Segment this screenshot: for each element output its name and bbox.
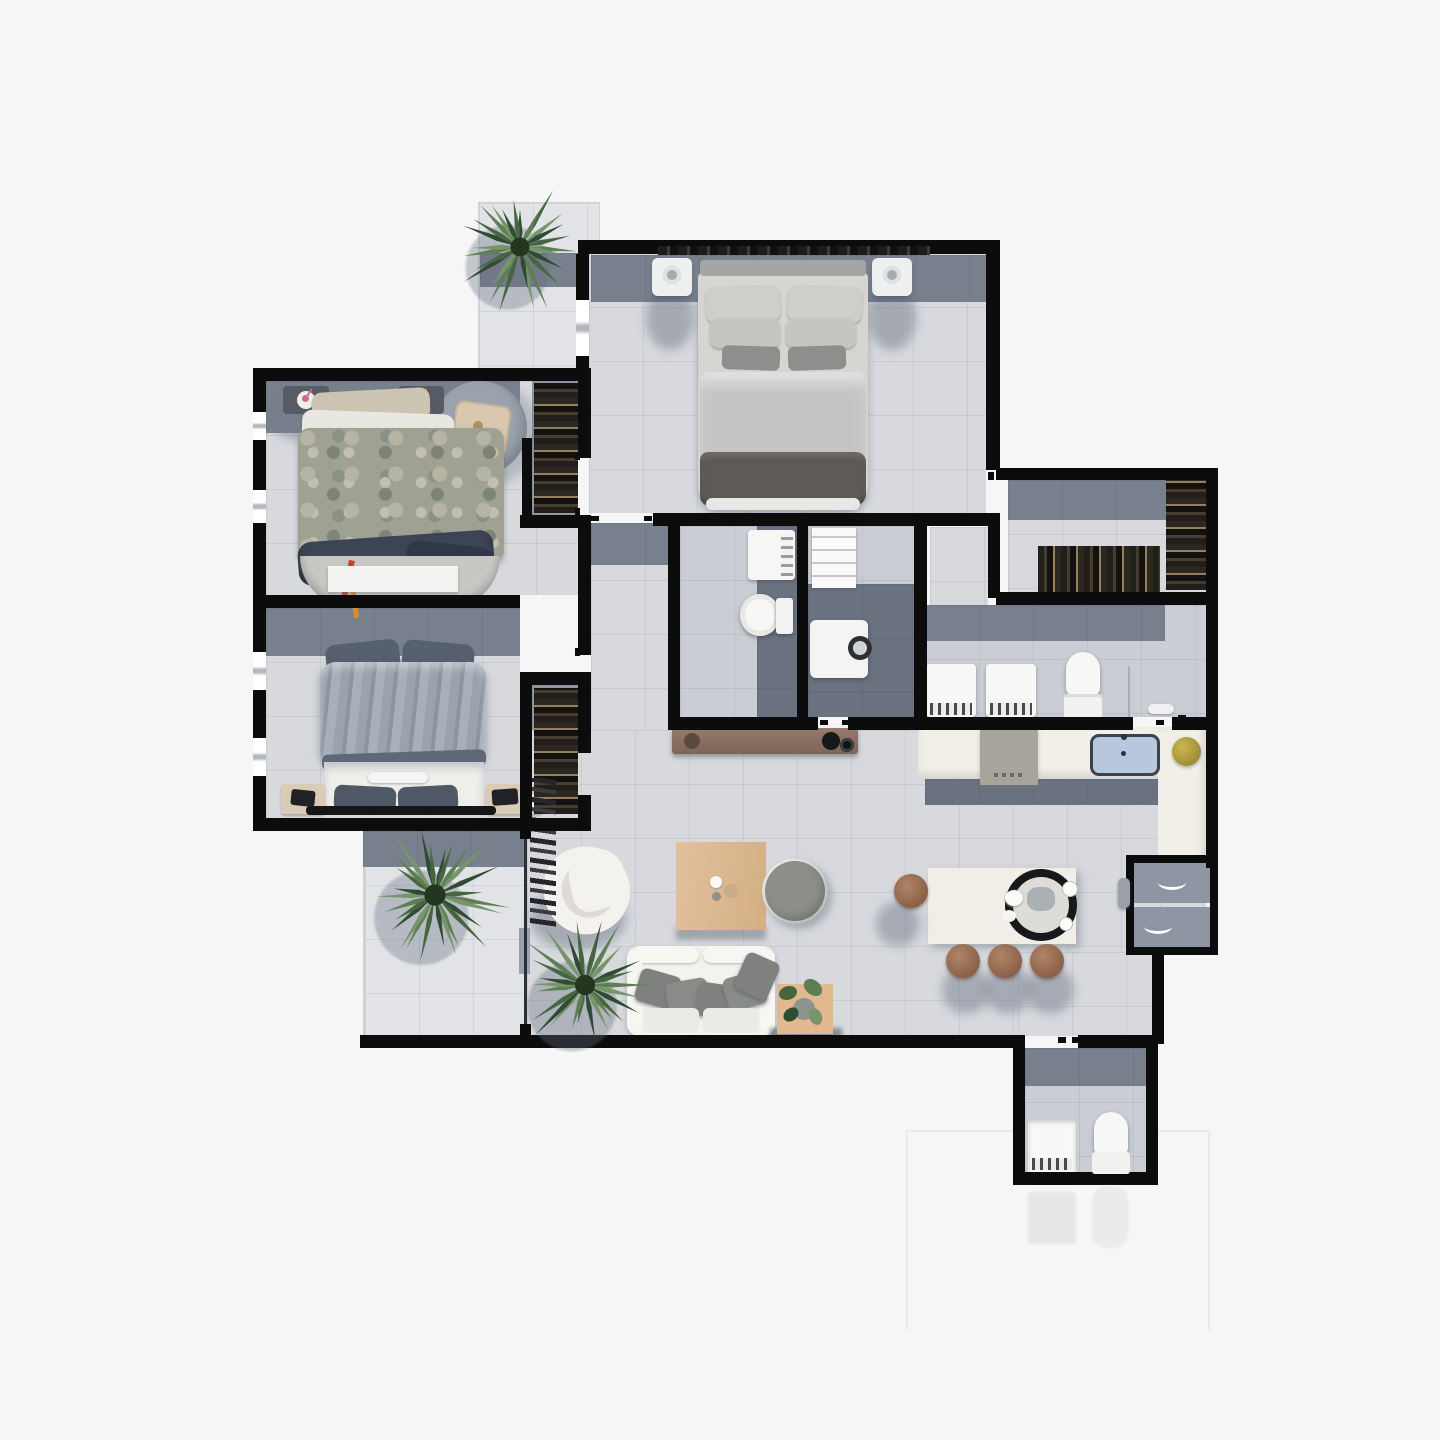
- wall: [253, 368, 591, 381]
- terrace-outline-line: [906, 1130, 1014, 1132]
- plate: [1005, 890, 1023, 906]
- window: [253, 738, 266, 776]
- table-lamp-icon: [663, 266, 681, 284]
- faucet-icon: [1121, 734, 1127, 740]
- wall: [360, 1035, 1018, 1048]
- stool-shadow: [876, 902, 920, 946]
- decor-knob: [684, 733, 700, 749]
- plant-side-table: [777, 984, 833, 1034]
- door-hinge-mark: [1156, 720, 1164, 725]
- towel-stack: [781, 534, 793, 576]
- sink-reflection: [1028, 1192, 1076, 1244]
- sheet-roll: [368, 772, 428, 783]
- bath2-vanity-sink: [1028, 1118, 1076, 1172]
- door-hinge-mark: [591, 516, 599, 521]
- door-hinge-mark: [575, 452, 580, 460]
- pouf: [762, 858, 828, 924]
- fridge-handle-icon: [1158, 875, 1186, 890]
- wall: [1206, 468, 1218, 868]
- window: [253, 412, 266, 440]
- fridge-handle-icon: [1144, 919, 1172, 934]
- wall: [988, 525, 1000, 598]
- fridge-frame: [1210, 855, 1218, 955]
- balcony-plant: [452, 179, 588, 315]
- nightstand-left: [652, 258, 692, 296]
- black-bowl: [822, 732, 840, 750]
- wall: [996, 468, 1218, 480]
- fruit-bowl: [1172, 737, 1201, 766]
- closet1-clothes-rack: [534, 383, 578, 513]
- stool: [988, 944, 1022, 978]
- wall: [520, 672, 591, 685]
- table-decor: [710, 876, 722, 888]
- palm-plant-icon: [452, 179, 588, 315]
- glass-partition: [1128, 666, 1130, 718]
- fridge-frame: [1126, 947, 1218, 955]
- door-hinge-mark: [820, 720, 828, 725]
- window: [253, 652, 266, 690]
- wc-toilet-tank: [776, 598, 793, 634]
- accent-pillow: [788, 345, 847, 371]
- cup: [1060, 918, 1072, 930]
- wall-frieze: [658, 246, 930, 255]
- stool: [946, 944, 980, 978]
- console-sideboard: [672, 728, 858, 754]
- wall: [1078, 1035, 1158, 1048]
- wc-toilet: [740, 594, 780, 636]
- coffee-table: [676, 842, 766, 930]
- wall: [578, 795, 591, 818]
- wall: [1013, 1035, 1025, 1185]
- bath2-toilet-tank: [1092, 1152, 1130, 1174]
- living-room-plant: [513, 913, 657, 1057]
- towel-row: [930, 703, 972, 715]
- dresser: [328, 566, 458, 592]
- bath2-toilet-bowl: [1094, 1112, 1128, 1156]
- wall: [522, 438, 532, 515]
- cooktop-knobs: [994, 773, 1024, 777]
- washer-door-icon: [848, 636, 872, 660]
- wall: [578, 368, 591, 458]
- nightstand-right: [872, 258, 912, 296]
- wall: [986, 254, 1000, 470]
- laptop-icon: [290, 789, 316, 807]
- bathroom2-dark-band: [1025, 1048, 1146, 1086]
- wall: [520, 685, 532, 818]
- walkin-clothes-rack-bottom: [1038, 546, 1160, 592]
- towel-row: [1032, 1158, 1072, 1170]
- sofa-seat-cushion: [703, 1008, 759, 1033]
- stool: [1030, 944, 1064, 978]
- table-decor: [712, 892, 721, 901]
- wall: [1146, 1048, 1158, 1185]
- wall: [914, 526, 927, 730]
- pillow: [786, 318, 856, 348]
- door-hinge-mark: [575, 648, 580, 656]
- fridge-unit-bottom: [1134, 907, 1210, 947]
- door-hinge-mark: [1178, 715, 1186, 720]
- vanity-sink-1: [926, 664, 976, 717]
- laundry-shelf-unit: [812, 528, 856, 588]
- kitchen-runner-rug: [925, 779, 1161, 805]
- cooktop: [980, 727, 1038, 785]
- accent-pillow: [722, 345, 781, 371]
- terrace-outline-line: [906, 1130, 908, 1330]
- door-hinge-mark: [644, 516, 652, 521]
- terrace-plant: [359, 819, 511, 971]
- toilet-reflection: [1092, 1186, 1128, 1248]
- wall: [668, 717, 818, 730]
- wc-vanity-sink: [748, 530, 795, 580]
- kitchen-sink: [1090, 734, 1160, 776]
- door-hinge-mark: [988, 518, 994, 526]
- vanity-sink-2: [986, 664, 1036, 717]
- door-hinge-mark: [1058, 1037, 1066, 1043]
- bath-alcove-floor: [930, 527, 988, 605]
- drain-icon: [1121, 751, 1126, 756]
- fridge-unit-top: [1134, 863, 1210, 903]
- headboard: [700, 260, 866, 276]
- wall: [848, 717, 930, 730]
- wall: [578, 515, 591, 655]
- stool: [894, 874, 928, 908]
- toilet-brush-icon: [1148, 704, 1174, 714]
- wall: [668, 526, 680, 730]
- foot-sheet: [706, 498, 860, 510]
- leaf: [779, 986, 797, 1000]
- wall: [1013, 1172, 1158, 1185]
- foot-bench: [306, 806, 496, 815]
- washing-machine: [810, 620, 868, 678]
- wall: [253, 595, 520, 608]
- palm-plant-icon: [513, 913, 657, 1057]
- table-decor: [724, 884, 738, 898]
- wall: [653, 513, 1000, 526]
- vanity-bath-dark-band: [925, 605, 1165, 641]
- master-bed: [698, 272, 868, 510]
- cup: [1063, 882, 1077, 896]
- plate: [1002, 910, 1016, 922]
- bath-toilet-tank: [1064, 694, 1102, 718]
- pillow: [710, 318, 780, 348]
- floor-plan: [0, 0, 1440, 1440]
- wall: [1152, 952, 1164, 1044]
- pan-food: [1027, 887, 1055, 911]
- bath-toilet-bowl: [1066, 652, 1100, 696]
- vacuum-icon: [1118, 878, 1130, 908]
- palm-plant-icon: [359, 819, 511, 971]
- wall: [578, 685, 591, 753]
- wall: [996, 592, 1206, 605]
- table-lamp-icon: [883, 266, 901, 284]
- wall: [930, 717, 1133, 730]
- towel-row: [990, 703, 1032, 715]
- black-plate: [840, 738, 854, 752]
- terrace-outline-line: [1208, 1130, 1210, 1330]
- walkin-clothes-rack-right: [1166, 478, 1206, 590]
- wall: [797, 513, 808, 730]
- door-hinge-mark: [575, 674, 580, 682]
- coat-rack: [530, 778, 556, 928]
- door-hinge-mark: [842, 720, 850, 725]
- terrace-outline-line: [1158, 1130, 1210, 1132]
- bedroom3-bed: [318, 638, 488, 816]
- hall-dark-patch: [591, 523, 668, 565]
- window: [253, 490, 266, 523]
- fridge-frame: [1126, 855, 1218, 863]
- laptop-icon: [491, 788, 518, 806]
- door-hinge-mark: [575, 508, 580, 516]
- door-hinge-mark: [988, 472, 994, 480]
- door-hinge-mark: [1072, 1037, 1080, 1043]
